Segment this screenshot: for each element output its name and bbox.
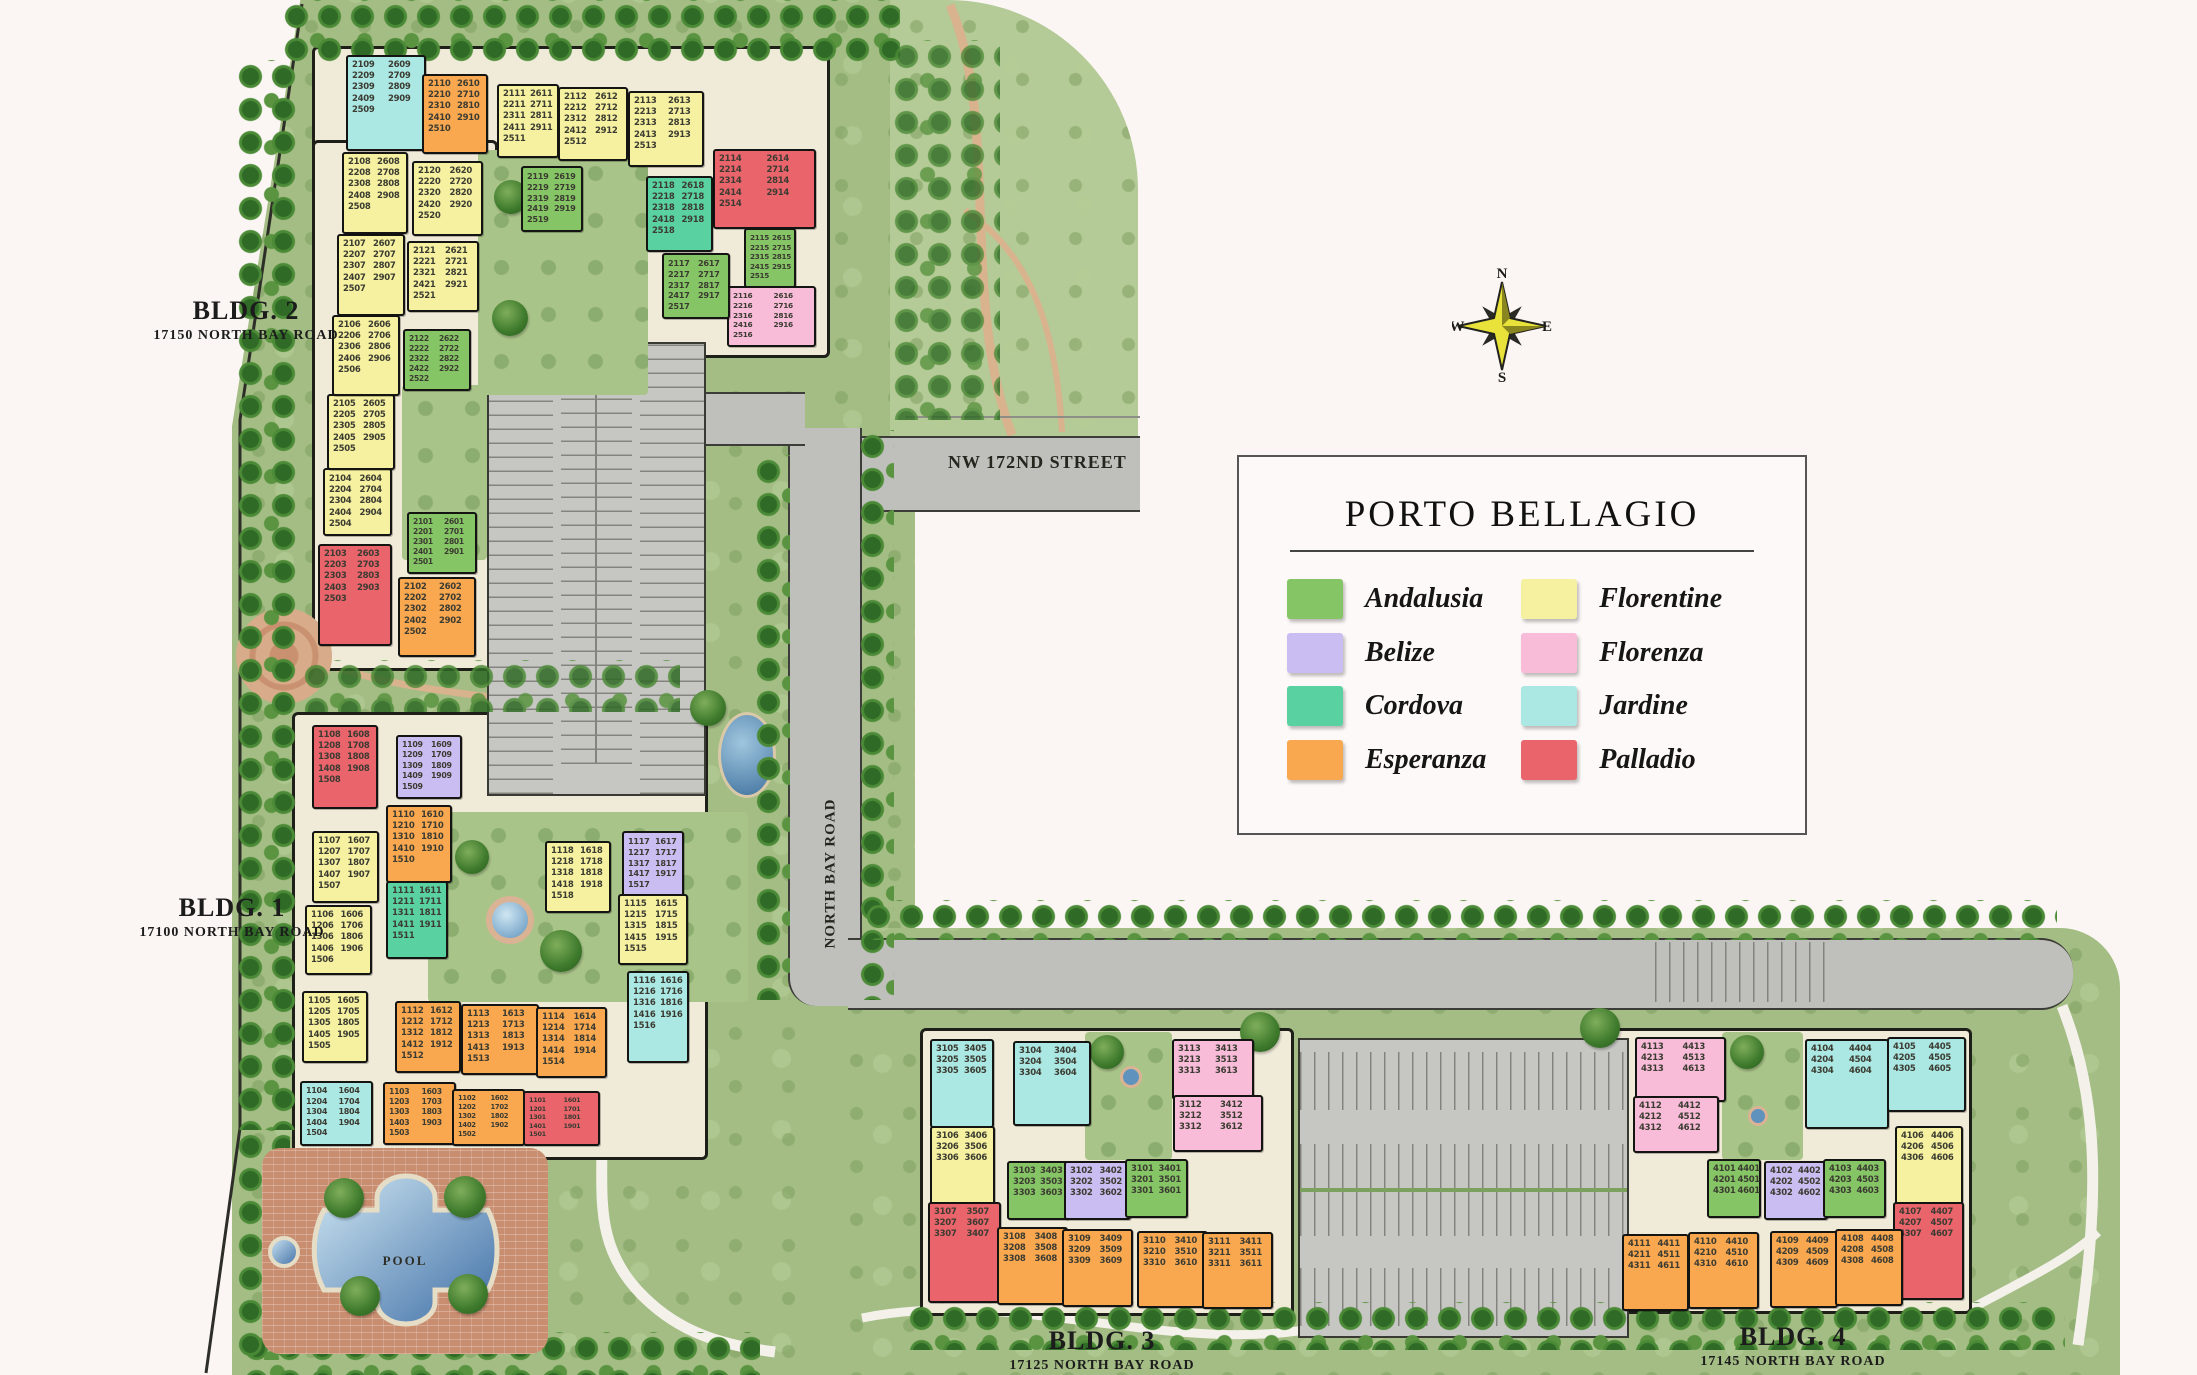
- unit-number: 1205: [308, 1007, 335, 1018]
- unit-number: 1115: [624, 899, 653, 910]
- unit-block-1110[interactable]: 111016101210171013101810141019101510: [386, 805, 452, 883]
- unit-number: 1301: [529, 1113, 562, 1122]
- unit-number: 4304: [1811, 1066, 1847, 1077]
- unit-number: 1102: [458, 1094, 489, 1103]
- unit-block-4108[interactable]: 410844084208450843084608: [1835, 1229, 1903, 1306]
- unit-number: 1603: [422, 1087, 453, 1097]
- unit-number: 2213: [634, 107, 666, 118]
- unit-number: 4509: [1806, 1247, 1834, 1258]
- unit-block-3113[interactable]: 311334133213351333133613: [1172, 1039, 1254, 1100]
- unit-number: 1308: [318, 752, 345, 763]
- unit-number: 3112: [1179, 1100, 1218, 1111]
- unit-number: 4602: [1798, 1188, 1824, 1199]
- unit-number: 4608: [1871, 1256, 1899, 1267]
- legend-grid: AndalusiaBelizeCordovaEsperanzaFlorentin…: [1287, 572, 1757, 787]
- unit-block-3106[interactable]: 310634063206350633063606: [930, 1126, 995, 1207]
- unit-block-2103[interactable]: 210326032203270323032803240329032503: [318, 544, 392, 646]
- unit-number: 4209: [1776, 1247, 1804, 1258]
- unit-number: 2611: [530, 89, 555, 100]
- unit-block-4107[interactable]: 410744074207450743074607: [1893, 1202, 1964, 1300]
- unit-number: 3209: [1068, 1245, 1098, 1256]
- unit-number: 2318: [652, 203, 680, 214]
- unit-number: 1508: [318, 775, 345, 786]
- unit-number: 3605: [964, 1066, 990, 1077]
- unit-block-3108[interactable]: 310834083208350833083608: [997, 1227, 1068, 1305]
- unit-number: 2202: [404, 593, 437, 604]
- unit-number: 4202: [1770, 1177, 1796, 1188]
- unit-block-1109[interactable]: 110916091209170913091809140919091509: [396, 735, 462, 799]
- unit-number: 2712: [595, 103, 624, 114]
- unit-number: 2412: [564, 126, 593, 137]
- unit-number: 1410: [392, 844, 419, 855]
- unit-number: 1703: [422, 1097, 453, 1107]
- unit-number: 1807: [348, 858, 376, 869]
- unit-number: 2815: [772, 252, 792, 262]
- unit-block-3110[interactable]: 311034103210351033103610: [1137, 1231, 1208, 1308]
- unit-number: 2408: [348, 191, 375, 202]
- unit-number: 4302: [1770, 1188, 1796, 1199]
- tree: [455, 840, 489, 874]
- unit-number: 3507: [967, 1207, 998, 1218]
- unit-block-2118[interactable]: 211826182218271823182818241829182518: [646, 176, 713, 252]
- tree: [1580, 1008, 1620, 1048]
- unit-number: 2821: [445, 268, 475, 279]
- unit-number: 2708: [377, 168, 404, 179]
- unit-number: 1207: [318, 847, 346, 858]
- unit-number: 4406: [1931, 1131, 1959, 1142]
- building-name: BLDG. 2: [66, 296, 426, 326]
- unit-number: 1908: [347, 764, 374, 775]
- unit-number: 3513: [1215, 1055, 1250, 1066]
- unit-number: 1909: [431, 771, 458, 781]
- unit-number: 1911: [419, 920, 444, 931]
- unit-number: 2320: [418, 188, 448, 199]
- unit-block-2109[interactable]: 210926092209270923092809240929092509: [346, 55, 426, 151]
- unit-number: 2520: [418, 211, 448, 222]
- unit-number: 1705: [337, 1007, 364, 1018]
- unit-number: 1312: [401, 1028, 428, 1039]
- unit-block-3101[interactable]: 310134013201350133013601: [1125, 1159, 1188, 1218]
- unit-number: 1708: [347, 741, 374, 752]
- unit-number: 2502: [404, 627, 437, 638]
- unit-number: 3202: [1070, 1177, 1098, 1188]
- unit-block-4101[interactable]: 410144014201450143014601: [1707, 1159, 1761, 1218]
- tree: [492, 300, 528, 336]
- unit-block-4110[interactable]: 411044104210451043104610: [1688, 1232, 1759, 1309]
- unit-number: 4305: [1893, 1064, 1927, 1075]
- unit-number: 2801: [444, 537, 473, 547]
- unit-number: 3107: [934, 1207, 965, 1218]
- unit-block-3109[interactable]: 310934093209350933093609: [1062, 1229, 1133, 1307]
- unit-block-1113[interactable]: 111316131213171313131813141319131513: [461, 1004, 539, 1075]
- unit-number: 1813: [502, 1031, 535, 1042]
- unit-number: 2914: [767, 188, 813, 199]
- unit-number: 1916: [660, 1010, 685, 1021]
- unit-number: 2411: [503, 123, 528, 134]
- palm-tree: [340, 1276, 380, 1316]
- unit-number: 1716: [660, 987, 685, 998]
- unit-number: 2621: [445, 246, 475, 257]
- unit-number: 1318: [551, 868, 578, 879]
- unit-number: 4204: [1811, 1055, 1847, 1066]
- unit-number: 1505: [308, 1041, 335, 1052]
- unit-number: 2916: [774, 320, 813, 330]
- legend-swatch-jardine: [1521, 686, 1577, 726]
- unit-number: 3204: [1019, 1057, 1052, 1068]
- unit-number: 1507: [318, 881, 346, 892]
- unit-number: 3211: [1208, 1248, 1238, 1259]
- unit-number: 3205: [936, 1055, 962, 1066]
- unit-number: 4207: [1899, 1218, 1929, 1229]
- unit-number: 4208: [1841, 1245, 1869, 1256]
- bldg-3-fountain: [1120, 1066, 1142, 1088]
- unit-number: 1613: [502, 1009, 535, 1020]
- unit-number: 2308: [348, 179, 375, 190]
- unit-number: 3106: [936, 1131, 963, 1142]
- unit-number: 3504: [1054, 1057, 1087, 1068]
- unit-number: 4410: [1726, 1237, 1756, 1248]
- unit-number: 2513: [634, 141, 666, 152]
- unit-block-1104[interactable]: 110416041204170413041804140419041504: [300, 1081, 373, 1146]
- unit-number: 2915: [772, 262, 792, 272]
- unit-number: 3506: [965, 1142, 992, 1153]
- unit-number: 3610: [1175, 1258, 1205, 1269]
- unit-number: 4403: [1857, 1164, 1883, 1175]
- unit-number: 3508: [1035, 1243, 1065, 1254]
- unit-number: 3212: [1179, 1111, 1218, 1122]
- unit-number: 1517: [628, 879, 653, 890]
- unit-number: 1504: [306, 1128, 337, 1139]
- unit-number: 1709: [431, 750, 458, 760]
- unit-block-3107[interactable]: 310735073207360733073407: [928, 1202, 1001, 1303]
- unit-number: 2112: [564, 92, 593, 103]
- unit-number: 1710: [421, 821, 448, 832]
- unit-number: 3509: [1100, 1245, 1130, 1256]
- unit-block-1118[interactable]: 111816181218171813181818141819181518: [545, 841, 611, 913]
- unit-number: 1310: [392, 832, 419, 843]
- unit-number: 3404: [1054, 1046, 1087, 1057]
- unit-number: 2607: [373, 239, 401, 250]
- unit-number: 1215: [624, 910, 653, 921]
- unit-number: 2422: [409, 364, 437, 374]
- unit-block-1116[interactable]: 111616161216171613161816141619161516: [627, 971, 689, 1063]
- unit-number: 1512: [401, 1051, 428, 1062]
- unit-number: 2714: [767, 165, 813, 176]
- unit-number: 1810: [421, 832, 448, 843]
- unit-number: 2105: [333, 399, 361, 410]
- unit-number: 2604: [360, 473, 389, 484]
- building-name: BLDG. 3: [922, 1326, 1282, 1356]
- unit-number: 1202: [458, 1103, 489, 1112]
- parking-stalls: [489, 344, 553, 794]
- unit-number: 1309: [402, 761, 429, 771]
- unit-block-1101[interactable]: 110116011201170113011801140119011501: [523, 1091, 600, 1146]
- unit-number: 1307: [318, 858, 346, 869]
- parking-stalls: [1300, 1052, 1627, 1110]
- parking-stalls: [640, 344, 704, 794]
- unit-block-1103[interactable]: 110316031203170313031803140319031503: [383, 1082, 456, 1145]
- unit-number: 2907: [373, 273, 401, 284]
- unit-number: 3401: [1159, 1164, 1185, 1175]
- unit-number: 1713: [502, 1020, 535, 1031]
- unit-number: 1407: [318, 870, 346, 881]
- unit-number: 1808: [347, 752, 374, 763]
- unit-number: 3403: [1040, 1166, 1065, 1177]
- unit-number: 1501: [529, 1130, 562, 1139]
- unit-block-3105[interactable]: 310534053205350533053605: [930, 1039, 994, 1128]
- unit-number: 2211: [503, 100, 528, 111]
- unit-block-1115[interactable]: 111516151215171513151815141519151515: [618, 894, 688, 965]
- legend-entry-florenza: Florenza: [1521, 626, 1757, 680]
- unit-number: 2622: [439, 334, 467, 344]
- bldg-2-parking-lot: [487, 342, 706, 796]
- legend-swatch-florenza: [1521, 633, 1577, 673]
- unit-block-3112[interactable]: 311234123212351233123612: [1173, 1095, 1263, 1152]
- unit-number: 2713: [668, 107, 700, 118]
- unit-number: 2321: [413, 268, 443, 279]
- unit-number: 1513: [467, 1054, 500, 1065]
- unit-number: 3412: [1220, 1100, 1259, 1111]
- unit-block-1102[interactable]: 110216021202170213021802140219021502: [452, 1089, 525, 1146]
- unit-block-2114[interactable]: 211426142214271423142814241429142514: [713, 149, 816, 229]
- unit-number: 2316: [733, 311, 772, 321]
- unit-number: 1609: [431, 740, 458, 750]
- unit-block-4105[interactable]: 410544054205450543054605: [1887, 1037, 1966, 1112]
- building-address: 17145 NORTH BAY ROAD: [1613, 1354, 1973, 1370]
- unit-number: 1610: [421, 810, 448, 821]
- unit-block-2104[interactable]: 210426042204270423042804240429042504: [323, 468, 392, 536]
- unit-block-4111[interactable]: 411144114211451143114611: [1622, 1234, 1689, 1311]
- unit-number: 4309: [1776, 1258, 1804, 1269]
- unit-number: 2104: [329, 473, 358, 484]
- unit-number: 1602: [491, 1094, 522, 1103]
- unit-block-2116[interactable]: 211626162216271623162816241629162516: [727, 286, 816, 347]
- unit-number: 2806: [368, 342, 396, 353]
- unit-block-3104[interactable]: 310434043204350433043604: [1013, 1041, 1091, 1126]
- unit-number: 2602: [439, 582, 472, 593]
- unit-block-2108[interactable]: 210826082208270823082808240829082508: [342, 152, 408, 234]
- site-map: POOL NW 172ND STREET NORTH BAY ROAD N E …: [0, 0, 2197, 1375]
- unit-number: 2305: [333, 421, 361, 432]
- unit-number: 2802: [439, 604, 472, 615]
- unit-number: 2913: [668, 130, 700, 141]
- unit-block-1105[interactable]: 110516051205170513051805140519051505: [302, 991, 368, 1063]
- unit-number: 4613: [1683, 1064, 1723, 1075]
- unit-number: 2304: [329, 495, 358, 506]
- unit-number: 2505: [333, 444, 361, 455]
- unit-number: 1415: [624, 933, 653, 944]
- unit-number: 1616: [660, 976, 685, 987]
- unit-block-2102[interactable]: 210226022202270223022802240229022502: [398, 577, 476, 657]
- unit-number: 4106: [1901, 1131, 1929, 1142]
- unit-number: 1203: [389, 1097, 420, 1107]
- unit-block-4102[interactable]: 410244024202450243024602: [1764, 1161, 1828, 1220]
- unit-number: 2514: [719, 199, 765, 210]
- unit-number: 4609: [1806, 1258, 1834, 1269]
- unit-number: 2217: [668, 269, 696, 280]
- tree: [690, 690, 726, 726]
- unit-number: 2222: [409, 344, 437, 354]
- unit-number: 1515: [624, 944, 653, 955]
- unit-number: 1601: [564, 1096, 597, 1105]
- unit-number: 1212: [401, 1017, 428, 1028]
- unit-number: 2901: [444, 547, 473, 557]
- unit-block-2111[interactable]: 211126112211271123112811241129112511: [497, 84, 559, 158]
- unit-block-1108[interactable]: 110816081208170813081808140819081508: [312, 725, 378, 809]
- unit-block-2115[interactable]: 211526152215271523152815241529152515: [744, 228, 796, 288]
- unit-number: 2904: [360, 507, 389, 518]
- unit-number: 2312: [564, 114, 593, 125]
- legend-name: Palladio: [1599, 744, 1695, 776]
- unit-number: 2319: [527, 193, 552, 204]
- unit-block-3102[interactable]: 310234023202350233023602: [1064, 1161, 1131, 1220]
- unit-block-2110[interactable]: 211026102210271023102810241029102510: [422, 74, 488, 154]
- unit-number: 1412: [401, 1040, 428, 1051]
- unit-number: 2204: [329, 484, 358, 495]
- unit-block-4103[interactable]: 410344034203450343034603: [1823, 1159, 1886, 1218]
- unit-number: 4101: [1713, 1164, 1735, 1175]
- unit-block-2117[interactable]: 211726172217271723172817241729172517: [662, 253, 730, 319]
- unit-number: 2721: [445, 257, 475, 268]
- unit-number: 2410: [428, 113, 455, 124]
- unit-number: 2822: [439, 354, 467, 364]
- unit-number: 3101: [1131, 1164, 1157, 1175]
- unit-number: 2102: [404, 582, 437, 593]
- unit-number: 4306: [1901, 1153, 1929, 1164]
- unit-block-2113[interactable]: 211326132213271323132813241329132513: [628, 91, 704, 167]
- unit-block-2119[interactable]: 211926192219271923192819241929192519: [521, 166, 583, 232]
- unit-number: 1406: [311, 944, 339, 955]
- unit-number: 2702: [439, 593, 472, 604]
- unit-number: 2608: [377, 157, 404, 168]
- unit-number: 2215: [750, 243, 770, 253]
- unit-block-2101[interactable]: 210126012201270123012801240129012501: [407, 512, 477, 574]
- unit-number: 2803: [357, 571, 388, 582]
- unit-number: 2115: [750, 233, 770, 243]
- unit-number: 2101: [413, 517, 442, 527]
- unit-number: 2816: [774, 311, 813, 321]
- unit-number: 1201: [529, 1105, 562, 1114]
- unit-block-4112[interactable]: 411244124212451243124612: [1633, 1096, 1719, 1153]
- unit-number: 2210: [428, 90, 455, 101]
- unit-number: 3302: [1070, 1188, 1098, 1199]
- unit-number: 1402: [458, 1121, 489, 1130]
- unit-number: 4504: [1849, 1055, 1885, 1066]
- legend-entry-palladio: Palladio: [1521, 733, 1757, 787]
- unit-number: 2307: [343, 261, 371, 272]
- legend-entry-belize: Belize: [1287, 626, 1521, 680]
- unit-number: 1113: [467, 1009, 500, 1020]
- compass-rose: N E S W: [1452, 266, 1552, 384]
- unit-number: 1604: [339, 1086, 370, 1097]
- unit-number: 2418: [652, 215, 680, 226]
- unit-number: 3405: [964, 1044, 990, 1055]
- unit-number: 2921: [445, 280, 475, 291]
- unit-number: 3503: [1040, 1177, 1065, 1188]
- unit-block-2105[interactable]: 210526052205270523052805240529052505: [327, 394, 395, 470]
- unit-number: 2807: [373, 261, 401, 272]
- unit-number: 4307: [1899, 1229, 1929, 1240]
- unit-number: 1216: [633, 987, 658, 998]
- unit-number: 1809: [431, 761, 458, 771]
- unit-block-4113[interactable]: 411344134213451343134613: [1635, 1037, 1726, 1102]
- unit-number: 2515: [750, 271, 770, 281]
- unit-number: 2511: [503, 134, 528, 145]
- unit-number: 2209: [352, 71, 386, 82]
- legend-entry-jardine: Jardine: [1521, 680, 1757, 734]
- unit-number: 4611: [1658, 1261, 1686, 1272]
- unit-number: 3110: [1143, 1236, 1173, 1247]
- unit-number: 1913: [502, 1043, 535, 1054]
- unit-block-1117[interactable]: 111716171217171713171817141719171517: [622, 831, 684, 897]
- unit-number: 4505: [1929, 1053, 1963, 1064]
- unit-number: 1401: [529, 1122, 562, 1131]
- unit-block-2112[interactable]: 211226122212271223122812241229122512: [558, 87, 628, 161]
- unit-number: 2109: [352, 60, 386, 71]
- unit-number: 2719: [554, 182, 579, 193]
- unit-block-4106[interactable]: 410644064206450643064606: [1895, 1126, 1963, 1207]
- unit-number: 1213: [467, 1020, 500, 1031]
- unit-number: 1101: [529, 1096, 562, 1105]
- unit-number: 1413: [467, 1043, 500, 1054]
- unit-number: 4607: [1931, 1229, 1961, 1240]
- unit-number: 1418: [551, 880, 578, 891]
- legend: PORTO BELLAGIO AndalusiaBelizeCordovaEsp…: [1237, 455, 1807, 835]
- unit-number: 2922: [439, 364, 467, 374]
- unit-number: 1105: [308, 996, 335, 1007]
- unit-block-4104[interactable]: 410444044204450443044604: [1805, 1039, 1889, 1129]
- unit-number: 2818: [682, 203, 710, 214]
- unit-block-2120[interactable]: 212026202220272023202820242029202520: [412, 161, 483, 236]
- unit-number: 4104: [1811, 1044, 1847, 1055]
- unit-number: 4511: [1658, 1250, 1686, 1261]
- unit-number: 4605: [1929, 1064, 1963, 1075]
- unit-number: 4105: [1893, 1042, 1927, 1053]
- unit-number: 1313: [467, 1031, 500, 1042]
- unit-block-3103[interactable]: 310334033203350333033603: [1007, 1161, 1069, 1220]
- unit-number: 1416: [633, 1010, 658, 1021]
- unit-number: 1812: [430, 1028, 457, 1039]
- unit-number: 3313: [1178, 1066, 1213, 1077]
- unit-number: 3410: [1175, 1236, 1205, 1247]
- unit-number: 4401: [1737, 1164, 1759, 1175]
- unit-number: 4405: [1929, 1042, 1963, 1053]
- unit-number: 3501: [1159, 1175, 1185, 1186]
- legend-divider: [1290, 550, 1754, 552]
- unit-block-1112[interactable]: 111216121212171213121812141219121512: [395, 1001, 461, 1073]
- unit-number: 2902: [439, 616, 472, 627]
- unit-number: 1116: [633, 976, 658, 987]
- unit-number: 3607: [967, 1218, 998, 1229]
- unit-number: 4111: [1628, 1239, 1656, 1250]
- unit-number: 4612: [1678, 1123, 1715, 1134]
- unit-number: 1802: [491, 1112, 522, 1121]
- unit-number: 1715: [655, 910, 684, 921]
- unit-number: 1815: [655, 921, 684, 932]
- unit-block-1114[interactable]: 111416141214171413141814141419141514: [536, 1007, 607, 1078]
- unit-number: 1914: [574, 1046, 604, 1057]
- unit-number: 2720: [450, 177, 480, 188]
- unit-number: 3103: [1013, 1166, 1038, 1177]
- compass-n: N: [1497, 266, 1508, 282]
- unit-block-4109[interactable]: 410944094209450943094609: [1770, 1231, 1838, 1308]
- unit-number: 2413: [634, 130, 666, 141]
- unit-number: 3312: [1179, 1122, 1218, 1133]
- unit-number: 2509: [352, 105, 386, 116]
- unit-number: 4407: [1931, 1207, 1961, 1218]
- unit-block-3111[interactable]: 311134113211351133113611: [1202, 1232, 1273, 1309]
- unit-number: 1904: [339, 1118, 370, 1129]
